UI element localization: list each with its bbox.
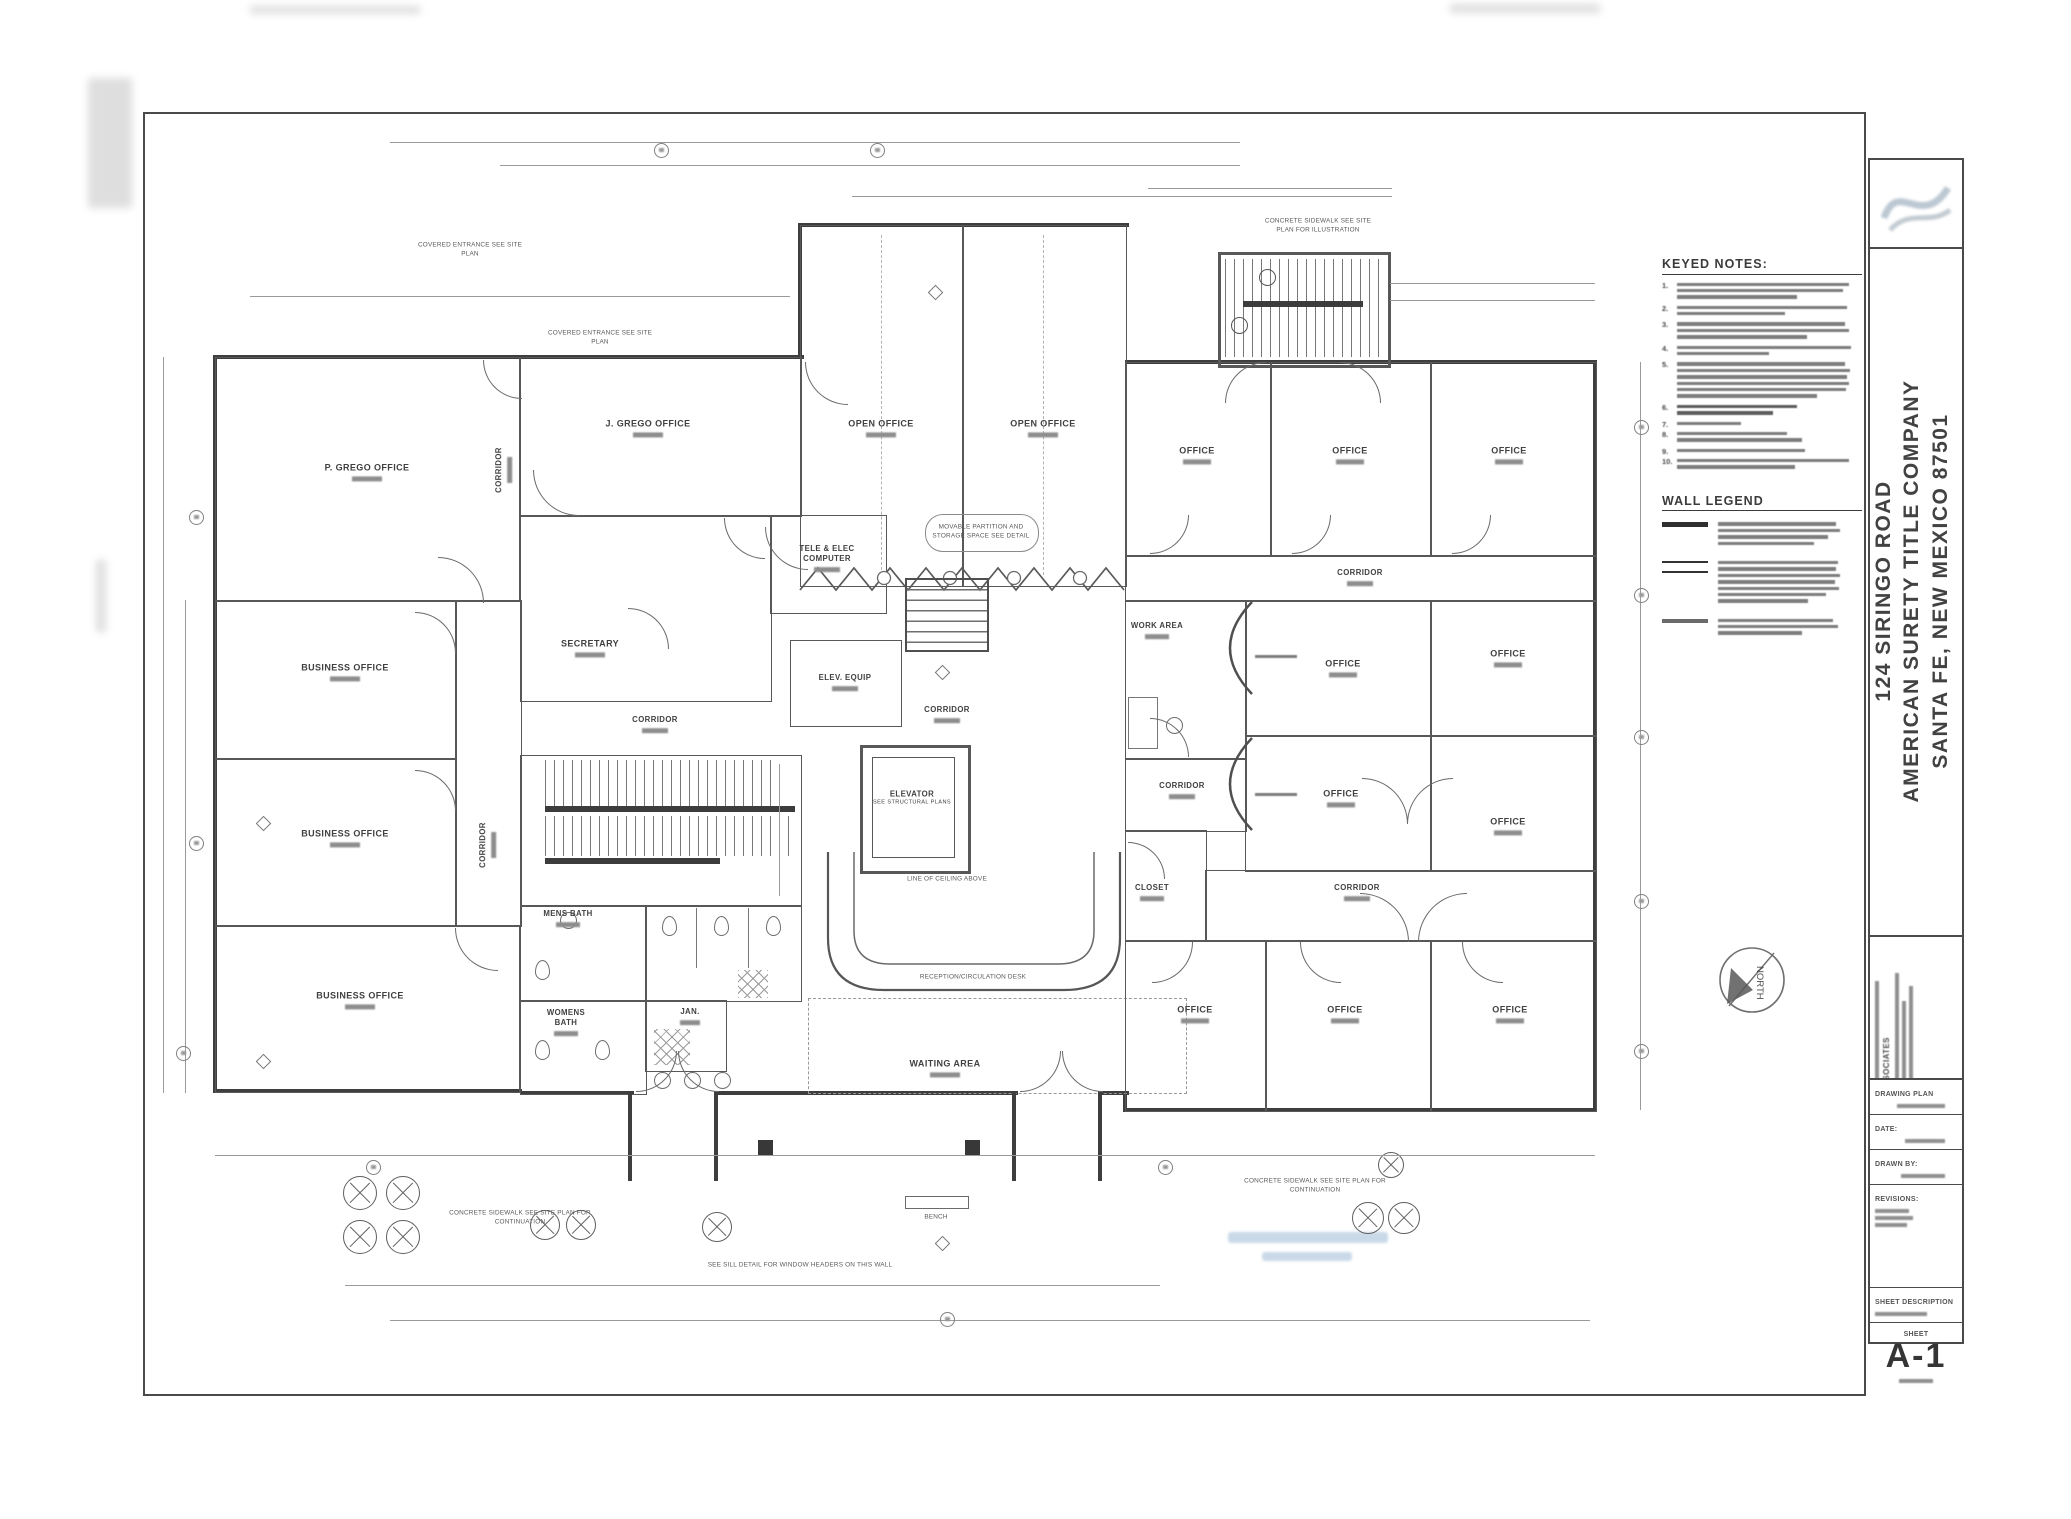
stall-partition xyxy=(748,908,749,968)
wall-type-sample xyxy=(1662,522,1708,527)
date-label: DATE: xyxy=(1875,1126,1897,1133)
scan-smudge xyxy=(250,6,420,14)
room-office-b1 xyxy=(1125,940,1267,1112)
shrub-symbol xyxy=(702,1212,732,1242)
movable-partition-note: MOVABLE PARTITION AND STORAGE SPACE SEE … xyxy=(931,523,1031,540)
keyed-note: 7. xyxy=(1662,422,1862,425)
smudge-line xyxy=(1677,438,1802,441)
wall-legend-item xyxy=(1662,616,1862,638)
grid-bubble xyxy=(1634,588,1649,603)
shrub-symbol xyxy=(343,1220,377,1254)
drawing-plan-label: DRAWING PLAN xyxy=(1875,1091,1933,1098)
smudge-line xyxy=(1718,542,1814,545)
label-corridor-r2: CORRIDOR xyxy=(1137,781,1227,799)
note-number: 2. xyxy=(1662,305,1668,313)
toilet-fixture xyxy=(535,1040,550,1060)
room-office-b3 xyxy=(1430,940,1597,1112)
label-j-grego: J. GREGO OFFICE xyxy=(593,418,703,437)
label-p-grego: P. GREGO OFFICE xyxy=(312,462,422,481)
toilet-fixture xyxy=(595,1040,610,1060)
label-corridor-nw: CORRIDOR xyxy=(494,425,512,515)
dimension-line xyxy=(390,1320,1590,1321)
label-office-b3: OFFICE xyxy=(1470,1004,1550,1023)
smudge-line xyxy=(1677,306,1847,309)
label-open-office-1: OPEN OFFICE xyxy=(826,418,936,437)
reception-desk-label: RECEPTION/CIRCULATION DESK xyxy=(898,974,1048,983)
project-title-box: 124 SIRINGO ROAD AMERICAN SURETY TITLE C… xyxy=(1868,247,1964,939)
note-number: 4. xyxy=(1662,345,1668,353)
label-corridor-h1: CORRIDOR xyxy=(610,715,700,733)
keyed-note: 6. xyxy=(1662,405,1862,415)
smudge-line xyxy=(1718,535,1828,538)
illegible-revision-date xyxy=(1875,1223,1907,1227)
label-office-b1: OFFICE xyxy=(1155,1004,1235,1023)
keyed-notes-panel: KEYED NOTES: 1. 2. 3. 4. 5. 6. 7. 8. 9. … xyxy=(1662,258,1862,648)
label-office-tr1: OFFICE xyxy=(1157,445,1237,464)
toilet-fixture xyxy=(714,916,729,936)
handwritten-stamp-scribble xyxy=(1870,160,1962,249)
tile-floor-patch xyxy=(738,970,768,998)
label-closet: CLOSET xyxy=(1122,883,1182,901)
covered-entrance-note: COVERED ENTRANCE SEE SITE PLAN xyxy=(410,241,530,258)
stair-rail xyxy=(545,806,795,812)
stair-treads xyxy=(545,816,797,856)
label-elev-equip: ELEV. EQUIP xyxy=(800,673,890,691)
canopy-line xyxy=(1148,188,1392,189)
label-work-area: WORK AREA xyxy=(1129,621,1185,639)
room-office-r1 xyxy=(1430,600,1597,737)
smudge-line xyxy=(1677,346,1851,349)
label-mens-bath: MENS BATH xyxy=(540,909,596,927)
note-number: 1. xyxy=(1662,282,1668,290)
north-arrow-icon: NORTH xyxy=(1714,942,1790,1018)
title-row-drawing: DRAWING PLAN xyxy=(1870,1080,1962,1115)
illegible-value xyxy=(1875,1312,1927,1316)
label-waiting-area: WAITING AREA xyxy=(890,1058,1000,1077)
keyed-note: 3. xyxy=(1662,322,1862,338)
smudge-line xyxy=(1718,625,1838,628)
project-address: 124 SIRINGO ROAD xyxy=(1870,249,1898,933)
dimension-line xyxy=(215,1155,1595,1156)
grid-bubble xyxy=(366,1160,381,1175)
smudge-line xyxy=(1677,312,1785,315)
smudge-line xyxy=(1677,362,1845,365)
grid-bubble xyxy=(1158,1160,1173,1175)
scan-smudge xyxy=(1450,4,1600,13)
faint-blue-handwriting xyxy=(1262,1252,1352,1261)
title-row-date: DATE: xyxy=(1870,1115,1962,1150)
shrub-symbol xyxy=(1352,1202,1384,1234)
smudge-line xyxy=(1677,382,1849,385)
smudge-line xyxy=(1718,561,1838,564)
wall-type-sample xyxy=(1662,561,1708,573)
shrub-symbol xyxy=(386,1176,420,1210)
room-office-b2 xyxy=(1265,940,1432,1112)
toilet-fixture xyxy=(535,960,550,980)
grid-bubble xyxy=(189,836,204,851)
keyed-notes-title: KEYED NOTES: xyxy=(1662,258,1862,275)
architect-box: & ASSOCIATES xyxy=(1868,935,1964,1082)
sidewalk-illustration-note: CONCRETE SIDEWALK SEE SITE PLAN FOR ILLU… xyxy=(1258,217,1378,234)
grid-bubble xyxy=(1634,894,1649,909)
smudge-line xyxy=(1677,394,1817,397)
keyed-note: 5. xyxy=(1662,362,1862,397)
centerline xyxy=(881,235,882,575)
covered-entrance-note: COVERED ENTRANCE SEE SITE PLAN xyxy=(540,329,660,346)
dimension-line xyxy=(185,600,186,1093)
stair-tower xyxy=(1218,252,1391,368)
bench xyxy=(905,1196,969,1209)
dimension-line xyxy=(250,296,790,297)
sheet-number-cell: SHEET A-1 xyxy=(1870,1323,1962,1383)
bench-label: BENCH xyxy=(906,1214,966,1223)
vestibule-wall xyxy=(1012,1093,1016,1181)
room-office-r2 xyxy=(1430,735,1597,872)
label-corridor-west: CORRIDOR xyxy=(478,800,496,890)
label-office-tr2: OFFICE xyxy=(1310,445,1390,464)
title-rows-box: DRAWING PLAN DATE: DRAWN BY: REVISIONS: … xyxy=(1868,1078,1964,1344)
note-number: 7. xyxy=(1662,421,1668,429)
label-womens-bath: WOMENS BATH xyxy=(538,1008,594,1036)
smudge-line xyxy=(1718,593,1826,596)
smudge-line xyxy=(1677,422,1741,425)
stair-rail xyxy=(1243,301,1363,307)
note-number: 8. xyxy=(1662,431,1668,439)
note-number: 5. xyxy=(1662,361,1668,369)
smudge-line xyxy=(1677,411,1773,414)
grid-bubble xyxy=(1634,1044,1649,1059)
title-row-drawn-by: DRAWN BY: xyxy=(1870,1150,1962,1185)
vestibule-wall xyxy=(1098,1093,1102,1181)
project-company: AMERICAN SURETY TITLE COMPANY xyxy=(1898,249,1926,933)
stair-treads xyxy=(545,760,777,806)
dimension-line xyxy=(163,357,164,1093)
note-number: 6. xyxy=(1662,404,1668,412)
scanned-floor-plan-sheet: 124 SIRINGO ROAD AMERICAN SURETY TITLE C… xyxy=(0,0,2071,1519)
stair-rail xyxy=(545,858,720,864)
dimension-line xyxy=(390,142,1240,143)
shrub-symbol xyxy=(1388,1202,1420,1234)
smudge-line xyxy=(1255,655,1297,658)
north-label: NORTH xyxy=(1754,966,1765,1000)
stair-landing-post xyxy=(1259,269,1276,286)
note-number: 10. xyxy=(1662,458,1672,466)
keyed-note: 10. xyxy=(1662,459,1862,469)
smudge-line xyxy=(1677,283,1849,286)
project-city: SANTA FE, NEW MEXICO 87501 xyxy=(1927,249,1955,933)
sidewalk-continuation-note: CONCRETE SIDEWALK SEE SITE PLAN FOR CONT… xyxy=(1230,1177,1400,1194)
wall-legend-title: WALL LEGEND xyxy=(1662,495,1862,512)
grid-bubble xyxy=(176,1046,191,1061)
elevator-sublabel: SEE STRUCTURAL PLANS xyxy=(872,799,952,806)
illegible-value xyxy=(1897,1104,1945,1108)
label-office-c1: OFFICE xyxy=(1303,658,1383,677)
scan-smudge xyxy=(96,560,106,632)
label-open-office-2: OPEN OFFICE xyxy=(988,418,1098,437)
scan-smudge xyxy=(88,78,132,208)
dimension-line xyxy=(345,1285,1160,1286)
vestibule-wall xyxy=(714,1093,718,1181)
illegible-value xyxy=(1905,1139,1945,1143)
smudge-line xyxy=(1677,405,1797,408)
entry-column xyxy=(758,1140,773,1155)
smudge-line xyxy=(1677,375,1847,378)
illegible-sheet-count xyxy=(1899,1379,1933,1383)
grid-bubble xyxy=(1634,420,1649,435)
revisions-label: REVISIONS: xyxy=(1875,1196,1918,1203)
entry-column xyxy=(965,1140,980,1155)
dimension-line xyxy=(852,196,1242,197)
centerline xyxy=(1043,235,1044,575)
stair-west xyxy=(520,755,802,907)
shrub-symbol xyxy=(343,1176,377,1210)
smudge-line xyxy=(1718,619,1833,622)
wall-type-sample xyxy=(1662,619,1708,623)
smudge-line xyxy=(1677,449,1805,452)
illegible-value xyxy=(1901,1174,1945,1178)
label-corridor-r1: CORRIDOR xyxy=(1315,568,1405,586)
grid-bubble xyxy=(940,1312,955,1327)
keyed-note: 8. xyxy=(1662,432,1862,442)
label-business-1: BUSINESS OFFICE xyxy=(295,662,395,681)
smudge-line xyxy=(1677,335,1807,338)
keyed-note: 4. xyxy=(1662,346,1862,356)
label-office-tr3: OFFICE xyxy=(1469,445,1549,464)
smudge-line xyxy=(1677,295,1797,298)
smudge-line xyxy=(1677,459,1849,462)
wall-legend-item xyxy=(1662,519,1862,548)
dimension-line xyxy=(500,165,1240,166)
smudge-line xyxy=(1677,322,1845,325)
smudge-line xyxy=(1255,793,1297,796)
elevator-label: ELEVATOR SEE STRUCTURAL PLANS xyxy=(872,789,952,806)
stair-landing-post xyxy=(1231,317,1248,334)
smudge-line xyxy=(1718,567,1836,570)
grid-bubble xyxy=(1634,730,1649,745)
keyed-note: 1. xyxy=(1662,283,1862,299)
smudge-line xyxy=(1718,587,1839,590)
keyed-note: 9. xyxy=(1662,449,1862,452)
dimension-line xyxy=(1390,283,1595,284)
label-jan: JAN. xyxy=(667,1007,713,1025)
label-office-r1: OFFICE xyxy=(1468,648,1548,667)
shrub-symbol xyxy=(386,1220,420,1254)
label-corridor-center: CORRIDOR xyxy=(902,705,992,723)
smudge-line xyxy=(1677,329,1849,332)
label-office-r2: OFFICE xyxy=(1468,816,1548,835)
label-business-2: BUSINESS OFFICE xyxy=(295,828,395,847)
stair-direction-line xyxy=(779,764,780,896)
drawn-by-label: DRAWN BY: xyxy=(1875,1161,1918,1168)
grid-bubble xyxy=(654,143,669,158)
title-row-revisions: REVISIONS: xyxy=(1870,1185,1962,1288)
toilet-fixture xyxy=(766,916,781,936)
grid-bubble xyxy=(189,510,204,525)
partition-storage-cabinet xyxy=(905,578,989,652)
smudge-line xyxy=(1677,465,1795,468)
smudge-line xyxy=(1718,529,1840,532)
smudge-line xyxy=(1718,574,1840,577)
smudge-line xyxy=(1718,631,1802,634)
title-row-sheet-description: SHEET DESCRIPTION xyxy=(1870,1288,1962,1323)
shrub-symbol xyxy=(530,1210,560,1240)
label-office-b2: OFFICE xyxy=(1305,1004,1385,1023)
illegible-revision-date xyxy=(1875,1216,1913,1220)
curved-wall xyxy=(1200,595,1270,840)
label-secretary: SECRETARY xyxy=(540,638,640,657)
stamp-box xyxy=(1868,158,1964,251)
dimension-line xyxy=(1390,300,1595,301)
keyed-note: 2. xyxy=(1662,306,1862,316)
illegible-revision-date xyxy=(1875,1209,1909,1213)
wall-legend-item xyxy=(1662,558,1862,606)
note-number: 9. xyxy=(1662,448,1668,456)
grid-bubble xyxy=(870,143,885,158)
smudge-line xyxy=(1677,388,1846,391)
note-number: 3. xyxy=(1662,321,1668,329)
label-corridor-r3: CORRIDOR xyxy=(1312,883,1402,901)
smudge-line xyxy=(1718,599,1808,602)
sheet-description-label: SHEET DESCRIPTION xyxy=(1875,1299,1953,1306)
vestibule-wall xyxy=(628,1093,632,1181)
smudge-line xyxy=(1677,352,1769,355)
shrub-symbol xyxy=(566,1210,596,1240)
stair-treads xyxy=(1225,259,1380,357)
toilet-stalls xyxy=(645,905,802,1002)
smudge-line xyxy=(1718,580,1835,583)
stall-partition xyxy=(696,908,697,968)
smudge-line xyxy=(1718,522,1836,525)
project-title-rotated: 124 SIRINGO ROAD AMERICAN SURETY TITLE C… xyxy=(1870,249,1958,933)
smudge-line xyxy=(1677,369,1850,372)
label-business-3: BUSINESS OFFICE xyxy=(310,990,410,1009)
sill-detail-note: SEE SILL DETAIL FOR WINDOW HEADERS ON TH… xyxy=(700,1262,900,1271)
toilet-fixture xyxy=(662,916,677,936)
smudge-line xyxy=(1677,289,1843,292)
smudge-line xyxy=(1677,432,1787,435)
sheet-number: A-1 xyxy=(1870,1339,1962,1373)
